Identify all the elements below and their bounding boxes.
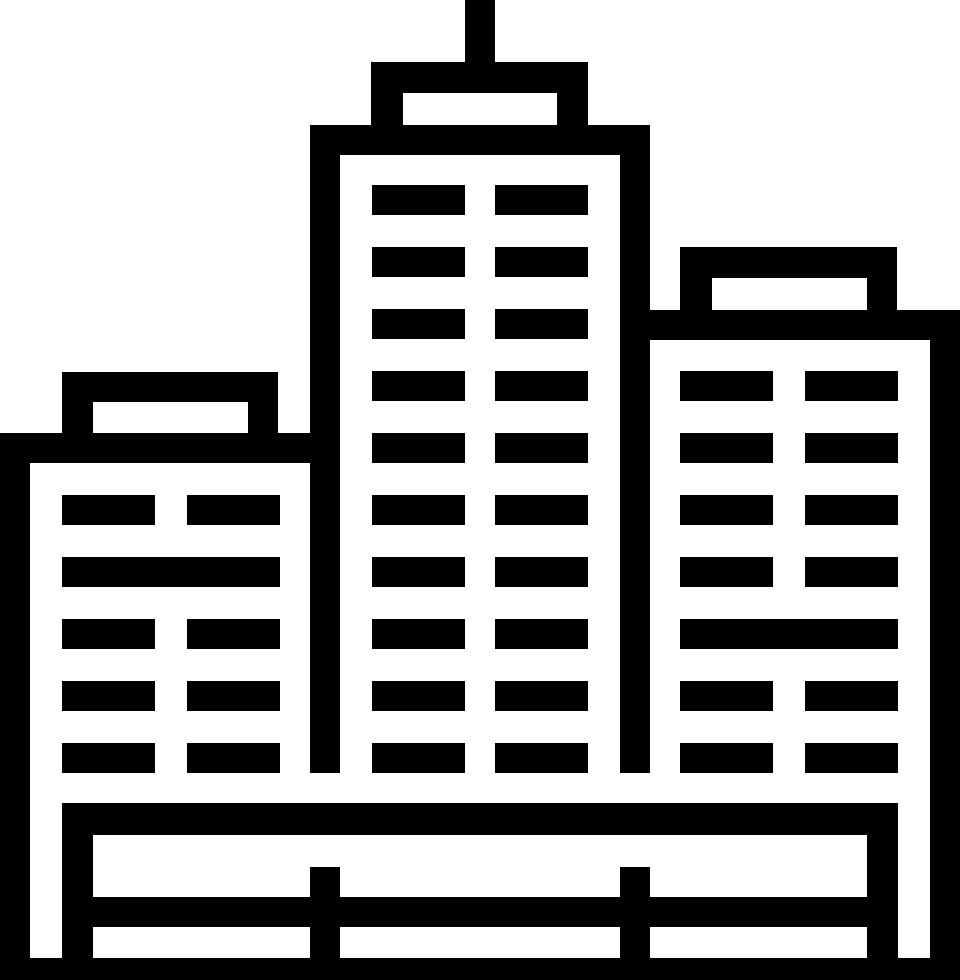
center-window-r5-c2 — [495, 433, 588, 463]
left-building-roof — [0, 433, 310, 463]
right-window-r4-c1 — [680, 557, 773, 587]
right-window-r3-c1 — [680, 495, 773, 525]
right-window-r7-c1 — [680, 743, 773, 773]
center-window-r10-c2 — [495, 743, 588, 773]
center-tower-left-wall — [310, 155, 340, 773]
right-window-r2-c1 — [680, 433, 773, 463]
icon-canvas — [0, 0, 960, 980]
right-window-r6-c2 — [805, 681, 898, 711]
right-window-r7-c2 — [805, 743, 898, 773]
center-window-r8-c2 — [495, 619, 588, 649]
center-window-r7-c2 — [495, 557, 588, 587]
ground-platform-bar — [62, 803, 898, 835]
right-window-r6-c1 — [680, 681, 773, 711]
left-window-r4-c1 — [62, 681, 155, 711]
left-window-r5-c2 — [187, 743, 280, 773]
right-roof-cap-top — [680, 247, 897, 278]
antenna-mast — [465, 0, 495, 62]
center-window-r5-c1 — [372, 433, 465, 463]
ground-base-bar — [0, 958, 960, 980]
center-window-r2-c2 — [495, 247, 588, 277]
center-window-r4-c1 — [372, 371, 465, 401]
center-window-r8-c1 — [372, 619, 465, 649]
center-window-r10-c1 — [372, 743, 465, 773]
right-window-r1-c2 — [805, 371, 898, 401]
center-roof-cap-top — [371, 62, 588, 93]
left-window-r3-c1 — [62, 619, 155, 649]
left-roof-cap-right — [248, 402, 278, 433]
ground-right-post — [867, 835, 898, 958]
right-window-r3-c2 — [805, 495, 898, 525]
left-window-r1-c2 — [187, 495, 280, 525]
left-window-r2-wide — [62, 557, 280, 587]
center-window-r1-c1 — [372, 185, 465, 215]
left-roof-cap-left — [62, 402, 93, 433]
left-building-left-wall — [0, 463, 30, 980]
left-window-r5-c1 — [62, 743, 155, 773]
fence-rail — [62, 897, 898, 927]
center-window-r4-c2 — [495, 371, 588, 401]
right-window-r2-c2 — [805, 433, 898, 463]
right-window-r5-wide — [680, 619, 898, 649]
center-tower-roof — [310, 125, 650, 155]
left-window-r4-c2 — [187, 681, 280, 711]
right-window-r1-c1 — [680, 371, 773, 401]
center-window-r6-c1 — [372, 495, 465, 525]
left-window-r3-c2 — [187, 619, 280, 649]
center-window-r1-c2 — [495, 185, 588, 215]
city-buildings-icon — [0, 0, 960, 980]
center-window-r3-c2 — [495, 309, 588, 339]
center-window-r3-c1 — [372, 309, 465, 339]
center-window-r9-c1 — [372, 681, 465, 711]
right-roof-cap-right — [867, 278, 897, 310]
center-window-r7-c1 — [372, 557, 465, 587]
left-window-r1-c1 — [62, 495, 155, 525]
center-window-r9-c2 — [495, 681, 588, 711]
right-window-r4-c2 — [805, 557, 898, 587]
right-building-roof — [650, 310, 960, 340]
left-roof-cap-top — [62, 372, 278, 402]
right-building-right-wall — [930, 340, 960, 980]
center-window-r6-c2 — [495, 495, 588, 525]
center-tower-right-wall — [620, 155, 650, 773]
right-roof-cap-left — [680, 278, 712, 310]
ground-left-post — [62, 835, 93, 958]
center-window-r2-c1 — [372, 247, 465, 277]
center-roof-cap-right — [557, 93, 588, 125]
center-roof-cap-left — [371, 93, 403, 125]
